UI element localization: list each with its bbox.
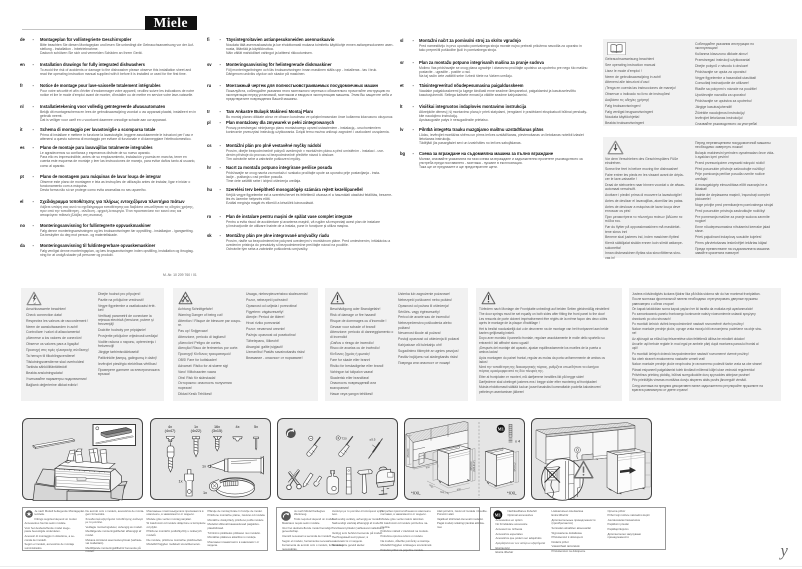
svg-text:1x: 1x <box>178 480 182 484</box>
svg-text:(3x15): (3x15) <box>212 429 223 433</box>
svg-text:1x: 1x <box>202 465 206 469</box>
svg-text:850-870: 850-870 <box>407 448 410 457</box>
svg-text:600: 600 <box>426 466 431 470</box>
svg-text:*XXL: *XXL <box>411 491 421 496</box>
svg-text:x 4: x 4 <box>515 439 520 443</box>
svg-text:600: 600 <box>457 488 462 492</box>
svg-text:T20: T20 <box>342 437 348 441</box>
svg-text:5x: 5x <box>254 425 258 429</box>
svg-text:550: 550 <box>429 484 435 489</box>
svg-text:1x: 1x <box>203 491 207 495</box>
svg-text:M1: M1 <box>498 426 504 431</box>
svg-text:(845-910*): (845-910*) <box>473 460 476 471</box>
svg-text:⌀3.5: ⌀3.5 <box>370 438 376 442</box>
svg-text:(4x47): (4x47) <box>165 429 176 433</box>
svg-text:845-910: 845-910 <box>514 462 517 471</box>
svg-text:4x: 4x <box>235 425 239 429</box>
svg-text:(4x22): (4x22) <box>191 429 202 433</box>
svg-text:598 (+5): 598 (+5) <box>440 491 450 496</box>
svg-text:*XXL: *XXL <box>507 491 517 496</box>
